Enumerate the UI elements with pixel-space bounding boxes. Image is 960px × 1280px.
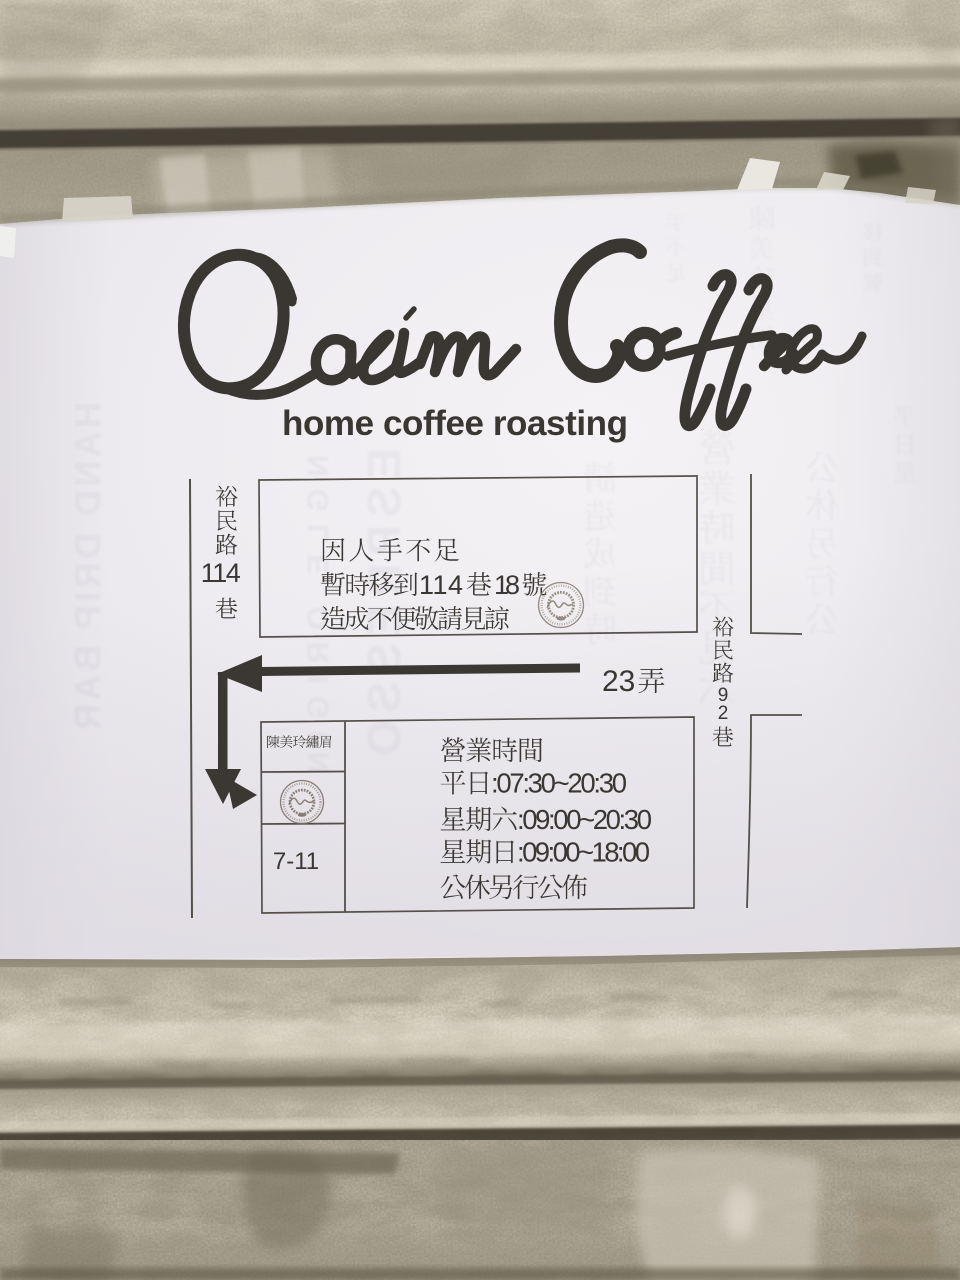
svg-text:2: 2 xyxy=(718,703,729,724)
svg-text::07:30~20:30: :07:30~20:30 xyxy=(491,768,627,799)
svg-text:7-11: 7-11 xyxy=(273,848,319,875)
svg-text:home coffee roasting: home coffee roasting xyxy=(282,404,628,443)
svg-text::09:00~20:30: :09:00~20:30 xyxy=(517,804,652,835)
svg-text:114: 114 xyxy=(201,558,241,588)
svg-text:114: 114 xyxy=(419,570,463,600)
svg-text:23: 23 xyxy=(602,665,635,698)
svg-text:HAND DRIP BAR: HAND DRIP BAR xyxy=(67,402,108,732)
svg-text::09:00~18:00: :09:00~18:00 xyxy=(517,837,650,868)
svg-text:18: 18 xyxy=(494,570,520,600)
